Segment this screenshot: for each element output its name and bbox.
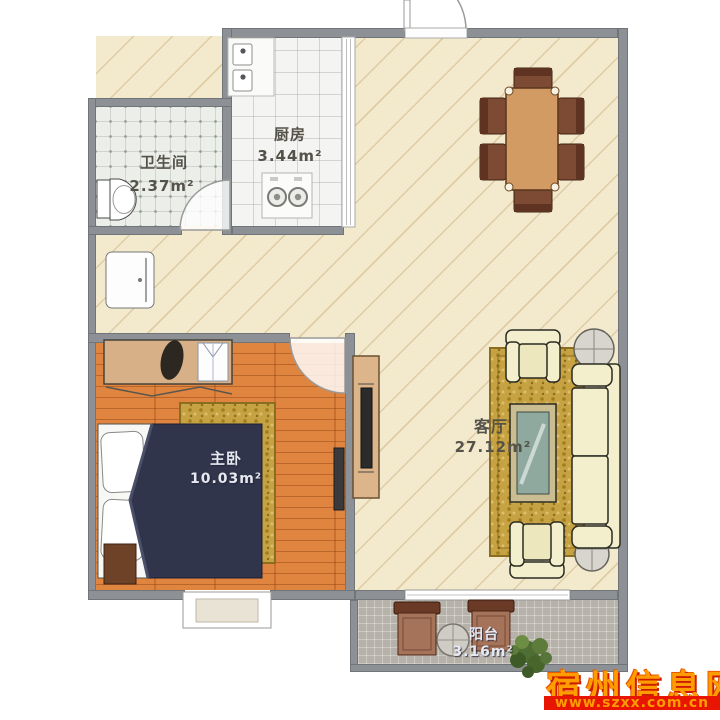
wall-kitchen-left <box>222 28 232 235</box>
wall-balcony-top-left <box>355 590 405 600</box>
wall-bathroom-bottom <box>88 226 182 235</box>
balcony-window <box>405 590 570 600</box>
bathroom-label: 卫生间 <box>140 152 188 173</box>
kitchen-area: 3.44m² <box>257 147 322 165</box>
wall-bedroom-bottom-right <box>270 590 355 600</box>
wall-left <box>88 98 96 600</box>
living-room-label: 客厅 <box>474 413 508 437</box>
watermark-url: www.szxx.com.cn <box>555 696 709 710</box>
watermark-url-bar: www.szxx.com.cn <box>544 696 720 710</box>
living-room-area: 27.12m² <box>455 438 532 456</box>
kitchen-label: 厨房 <box>274 124 306 145</box>
wall-top-right-of-entry <box>467 28 618 38</box>
wall-bedroom-top <box>88 333 290 343</box>
master-bedroom-area: 10.03m² <box>190 471 262 487</box>
entry-door-swing-arc <box>408 0 466 30</box>
master-bedroom-label: 主卧 <box>210 448 242 469</box>
floor-plan: 厨房 3.44m² 卫生间 2.37m² 主卧 10.03m² 客厅 27.12… <box>0 0 720 720</box>
entry-door-leaf <box>404 0 410 31</box>
balcony-label: 阳台 <box>469 624 499 644</box>
wall-balcony-top-right <box>570 590 618 600</box>
bay-window <box>183 592 271 628</box>
wall-bathroom-top <box>88 98 232 107</box>
wall-bedroom-bottom-left <box>88 590 185 600</box>
wall-kitchen-bottom <box>232 226 344 235</box>
wall-balcony-left <box>350 600 358 672</box>
wall-bedroom-living <box>345 333 355 600</box>
wall-right <box>618 28 628 672</box>
bathroom-area: 2.37m² <box>129 177 194 195</box>
wall-top-left-of-entry <box>222 28 405 38</box>
balcony-area: 3.16m² <box>452 644 513 660</box>
